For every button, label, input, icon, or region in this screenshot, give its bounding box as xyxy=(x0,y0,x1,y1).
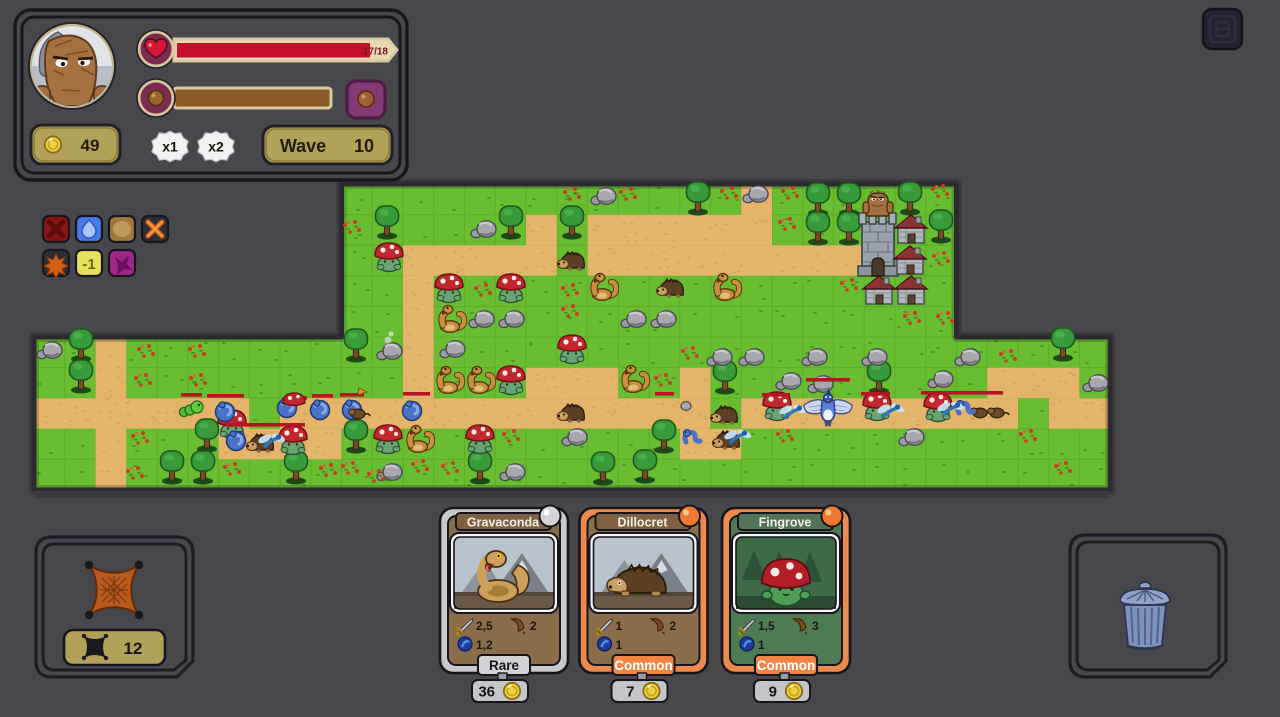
svg-text:-1: -1 xyxy=(82,256,95,273)
svg-text:9: 9 xyxy=(769,684,777,701)
svg-text:17/18: 17/18 xyxy=(363,47,388,58)
svg-text:1: 1 xyxy=(616,638,623,652)
svg-text:49: 49 xyxy=(81,136,100,155)
svg-text:x1: x1 xyxy=(162,139,178,155)
svg-text:Gravaconda: Gravaconda xyxy=(467,516,540,530)
svg-text:Common: Common xyxy=(614,658,673,673)
svg-text:Dillocret: Dillocret xyxy=(617,516,668,530)
svg-text:36: 36 xyxy=(478,684,495,701)
svg-text:Rare: Rare xyxy=(489,658,520,673)
svg-text:2,5: 2,5 xyxy=(476,619,493,633)
svg-text:1,2: 1,2 xyxy=(476,638,493,652)
svg-text:x2: x2 xyxy=(208,139,224,155)
svg-text:2: 2 xyxy=(530,619,537,633)
svg-text:Fingrove: Fingrove xyxy=(759,516,812,530)
svg-text:Wave: Wave xyxy=(280,136,326,156)
svg-text:7: 7 xyxy=(626,684,634,701)
svg-text:12: 12 xyxy=(124,639,143,658)
svg-text:1,5: 1,5 xyxy=(758,619,775,633)
svg-text:1: 1 xyxy=(616,619,623,633)
svg-text:1: 1 xyxy=(758,638,765,652)
svg-text:3: 3 xyxy=(812,619,819,633)
svg-text:2: 2 xyxy=(670,619,677,633)
svg-text:10: 10 xyxy=(354,136,374,156)
svg-text:Common: Common xyxy=(757,658,816,673)
